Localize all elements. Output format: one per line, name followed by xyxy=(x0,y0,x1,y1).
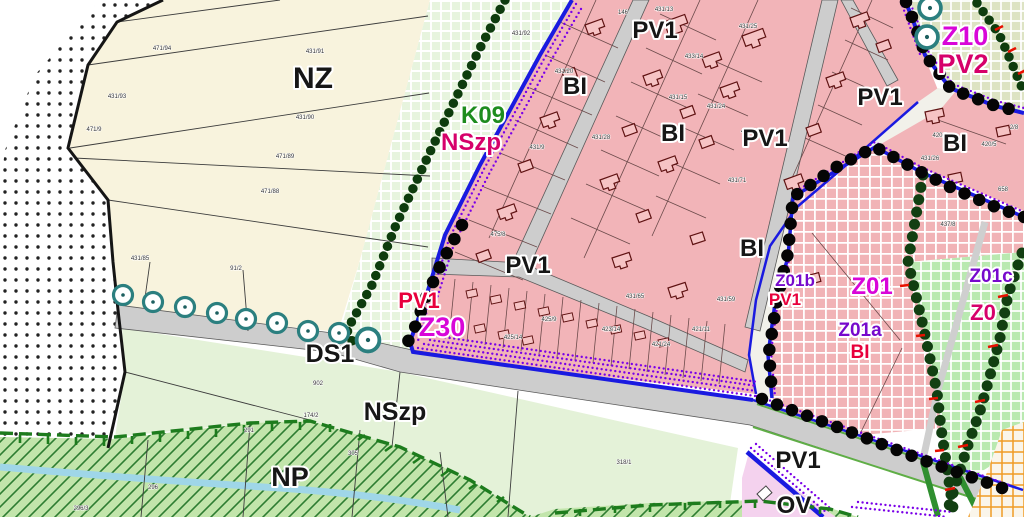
zone-label-pv1-red: PV1 xyxy=(398,288,440,313)
zone-label-z01: Z01 xyxy=(851,273,892,300)
zone-label-z01b: Z01b xyxy=(775,271,815,290)
parcel-label: 423/14 xyxy=(602,327,621,333)
parcel-label: 431/92 xyxy=(512,31,531,37)
parcel-label: 471/9 xyxy=(86,127,102,133)
parcel-label: 318/1 xyxy=(616,460,632,466)
parcel-label: 296 xyxy=(148,485,159,491)
zone-label-z10: Z10 xyxy=(942,21,989,51)
parcel-label: 431/25 xyxy=(739,24,758,30)
zoning-map-screenshot: 471/94 431/91 431/93 431/90 471/9 471/89… xyxy=(0,0,1024,517)
parcel-label: 425/9 xyxy=(541,317,557,323)
parcel-label: 431/90 xyxy=(296,115,315,121)
tree-icon xyxy=(357,329,380,352)
parcel-label: 425/14 xyxy=(504,335,523,341)
zone-label-ds1: DS1 xyxy=(306,340,355,368)
parcel-label: 431/26 xyxy=(921,156,940,162)
tree-icon xyxy=(237,310,256,329)
map-canvas: 471/94 431/91 431/93 431/90 471/9 471/89… xyxy=(0,0,1024,517)
parcel-label: 431/85 xyxy=(131,256,150,262)
zone-label-pv1-2: PV1 xyxy=(742,125,787,152)
parcel-label: 902 xyxy=(313,381,324,387)
parcel-label: 421/11 xyxy=(692,327,711,333)
zone-label-z01c: Z01c xyxy=(969,266,1013,287)
parcel-label: 431/93 xyxy=(108,94,127,100)
tree-icon xyxy=(916,26,938,48)
zone-label-k09: K09 xyxy=(461,102,505,129)
zone-label-z01a: Z01a xyxy=(838,320,882,341)
parcel-label: 431/24 xyxy=(707,104,726,110)
zone-label-nszp-black: NSzp xyxy=(364,398,427,426)
parcel-label: 431/9 xyxy=(529,145,545,151)
zone-label-bi-1: BI xyxy=(563,73,587,100)
zone-label-pv1-3: PV1 xyxy=(857,84,902,111)
zone-label-nszp-colored: NSzp xyxy=(441,129,501,156)
zone-label-pv1-top: PV1 xyxy=(632,17,677,44)
zone-label-bi-3: BI xyxy=(943,130,967,157)
parcel-label: 433/14 xyxy=(685,54,704,60)
parcel-label: 291 xyxy=(244,428,255,434)
zone-label-bi-red: BI xyxy=(851,342,870,363)
tree-icon xyxy=(299,322,318,341)
zone-label-z30: Z30 xyxy=(419,312,466,342)
parcel-label: 431/71 xyxy=(728,178,747,184)
zone-label-nz: NZ xyxy=(293,62,333,95)
zone-label-bi-4: BI xyxy=(740,235,764,262)
parcel-label: 475/8 xyxy=(490,232,506,238)
parcel-label: 431/15 xyxy=(669,95,688,101)
zone-label-pv1-bottom: PV1 xyxy=(775,447,820,474)
zone-label-z0: Z0 xyxy=(970,300,996,325)
parcel-label: 437/8 xyxy=(940,222,956,228)
parcel-label: 431/28 xyxy=(592,135,611,141)
zone-label-pv1-red2: PV1 xyxy=(769,290,801,309)
parcel-label: 420/5 xyxy=(981,142,997,148)
tree-icon xyxy=(268,314,287,333)
zone-label-bi-2: BI xyxy=(661,120,685,147)
parcel-label: 658 xyxy=(998,187,1009,193)
parcel-label: 431/91 xyxy=(306,49,325,55)
parcel-label: 431/59 xyxy=(717,297,736,303)
zone-label-ov: OV xyxy=(777,492,812,517)
parcel-label: 421/24 xyxy=(652,342,671,348)
parcel-label: 305 xyxy=(348,451,359,457)
tree-icon xyxy=(114,286,133,305)
parcel-label: 471/88 xyxy=(261,189,280,195)
parcel-label: 431/65 xyxy=(626,294,645,300)
tree-icon xyxy=(176,298,195,317)
zone-label-np: NP xyxy=(271,462,309,492)
tree-icon xyxy=(208,304,227,323)
zone-label-pv1-junction: PV1 xyxy=(505,252,550,279)
tree-icon xyxy=(144,293,163,312)
parcel-label: 91/2 xyxy=(230,266,242,272)
parcel-label: 146 xyxy=(618,10,629,16)
parcel-label: 431/13 xyxy=(655,7,674,13)
parcel-label: 2/8 xyxy=(1010,125,1019,131)
parcel-label: 471/94 xyxy=(153,46,172,52)
parcel-label: 296/3 xyxy=(73,506,89,512)
tree-icon xyxy=(919,0,941,19)
zone-label-pv2: PV2 xyxy=(937,49,988,79)
parcel-label: 471/89 xyxy=(276,154,295,160)
parcel-label: 174/2 xyxy=(303,413,319,419)
